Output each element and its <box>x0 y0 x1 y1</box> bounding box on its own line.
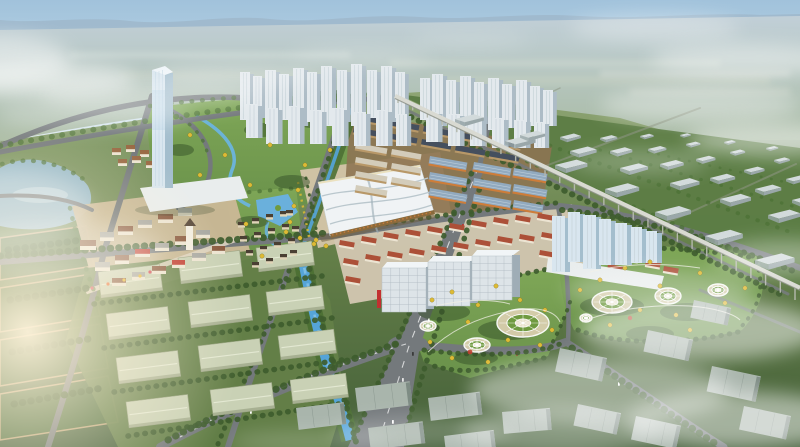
office-red-accent <box>377 290 381 308</box>
cloud <box>600 87 800 123</box>
cloud <box>565 270 755 310</box>
yellow-tree <box>268 143 272 147</box>
hotel-tower <box>615 223 632 265</box>
yellow-tree <box>198 173 202 177</box>
yellow-tree <box>188 133 192 137</box>
yellow-tree <box>328 148 332 152</box>
office-block <box>428 256 478 306</box>
yellow-tree <box>260 254 264 258</box>
yellow-tree <box>223 153 227 157</box>
yellow-tree <box>288 220 292 224</box>
yellow-tree <box>303 163 307 167</box>
rail-pier <box>794 288 795 300</box>
residential-tower <box>332 108 349 146</box>
villa <box>290 250 297 256</box>
rail-pier <box>559 177 560 184</box>
rail-pier <box>603 197 604 205</box>
rail-pier <box>780 281 781 293</box>
office-block <box>472 250 520 300</box>
rail-pier <box>677 232 678 241</box>
yellow-tree <box>296 188 300 192</box>
rail-pier <box>588 191 589 198</box>
hotel-tower <box>599 219 616 265</box>
villa <box>252 218 259 224</box>
yellow-tree <box>284 230 288 234</box>
villa <box>286 210 293 216</box>
hotel-tower <box>631 227 647 263</box>
residential-tower <box>266 108 283 144</box>
villa <box>266 214 273 220</box>
yellow-tree <box>450 290 454 294</box>
hotel-tower <box>583 215 601 269</box>
rail-pier <box>691 239 692 249</box>
rail-pier <box>574 184 575 191</box>
yellow-tree <box>292 204 296 208</box>
villa <box>268 228 275 234</box>
villa <box>260 246 267 252</box>
yellow-tree <box>648 260 652 264</box>
yellow-tree <box>486 360 490 364</box>
villa <box>266 258 273 264</box>
villa <box>252 262 259 268</box>
cloud <box>290 48 430 68</box>
residential-tower <box>288 106 305 144</box>
yellow-tree <box>450 356 454 360</box>
residential-tower <box>354 112 371 146</box>
residential-tower <box>376 110 393 146</box>
yellow-tree <box>538 343 542 347</box>
yellow-tree <box>314 238 318 242</box>
villa <box>280 211 287 217</box>
lagoon-island <box>275 205 281 211</box>
residential-tower <box>310 110 327 144</box>
yellow-tree <box>324 244 328 248</box>
hotel-tower <box>646 231 662 263</box>
rail-pier <box>530 163 531 169</box>
cloud <box>0 101 195 129</box>
yellow-tree <box>550 328 554 332</box>
rail-pier <box>633 211 634 219</box>
rail-pier <box>706 246 707 256</box>
yellow-tree <box>518 298 522 302</box>
aerial-city-rendering <box>0 0 800 447</box>
villa <box>254 232 261 238</box>
cloud <box>155 63 315 87</box>
yellow-tree <box>476 303 480 307</box>
villa <box>240 236 247 242</box>
residential-tower <box>246 104 263 138</box>
residential-tower <box>396 114 411 146</box>
residential-tower <box>530 86 544 126</box>
rail-pier <box>647 218 648 227</box>
rail-pier <box>662 225 663 234</box>
tree-clump <box>454 351 498 365</box>
tree-clump <box>274 175 310 189</box>
office-block <box>382 262 434 312</box>
yellow-tree <box>248 183 252 187</box>
hotel-tower <box>568 212 585 262</box>
garden-circle <box>497 309 549 337</box>
villa <box>288 238 295 244</box>
cloud <box>570 14 740 42</box>
yellow-tree <box>428 340 432 344</box>
rendering-canvas <box>0 0 800 447</box>
villa <box>246 250 253 256</box>
residential-tower <box>543 90 557 126</box>
vehicle <box>412 352 414 356</box>
hotel-tower <box>552 216 570 272</box>
yellow-tree <box>244 222 248 226</box>
yellow-tree <box>312 242 316 246</box>
villa <box>282 224 289 230</box>
cloud <box>570 150 710 174</box>
yellow-tree <box>506 338 510 342</box>
yellow-tree <box>494 284 498 288</box>
garden-circle <box>420 321 436 331</box>
cloud <box>410 32 530 48</box>
rail-pier <box>544 170 545 176</box>
villa <box>292 226 299 232</box>
rail-pier <box>618 204 619 212</box>
villa <box>274 242 281 248</box>
flower-bed <box>468 350 473 355</box>
yellow-tree <box>298 236 302 240</box>
yellow-tree <box>430 298 434 302</box>
rail-pier <box>765 274 766 285</box>
vehicle <box>402 378 404 382</box>
garden-circle <box>464 338 490 352</box>
villa <box>280 254 287 260</box>
